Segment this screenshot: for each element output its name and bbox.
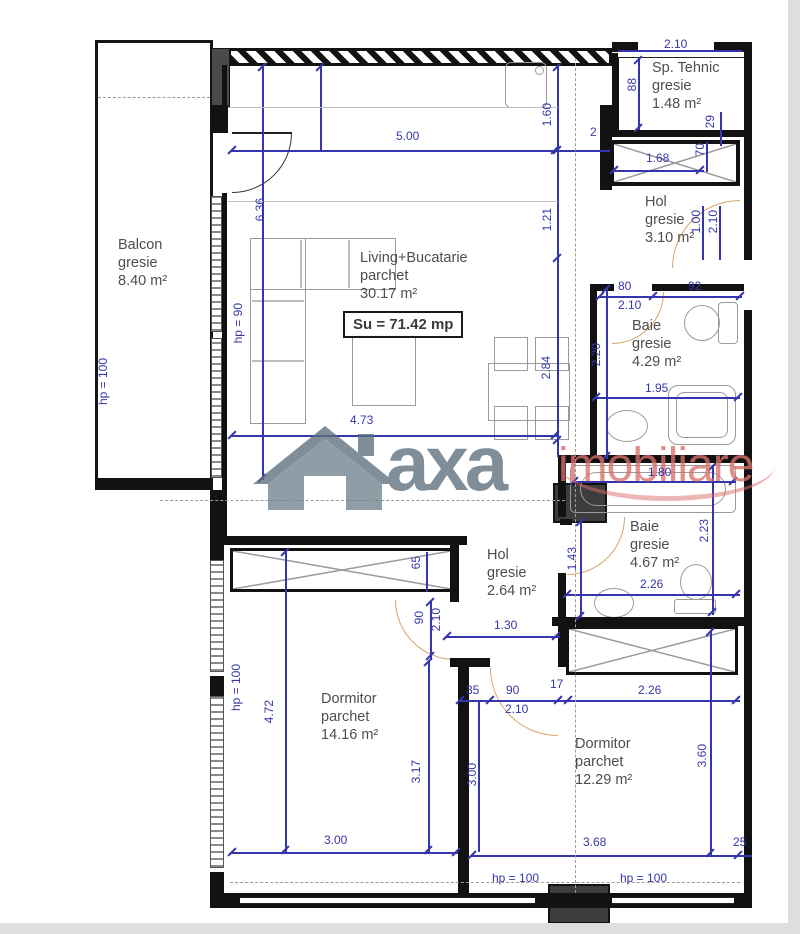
wall-segment (211, 105, 228, 133)
dashed-line (98, 97, 210, 98)
dimension-line (606, 287, 608, 459)
dimension-label: 2.84 (540, 356, 552, 379)
sofa-seam (300, 240, 302, 288)
dimension-line (565, 594, 740, 596)
dimension-line (612, 170, 704, 172)
house-icon (250, 424, 400, 510)
dining-chair (494, 337, 528, 371)
wall-segment (744, 310, 752, 908)
dimension-label: 2.26 (640, 578, 663, 590)
dimension-label: 2.10 (618, 299, 641, 311)
dimension-line (285, 550, 287, 852)
wall-segment (450, 658, 490, 667)
window-double-line (612, 897, 734, 904)
wall-segment (558, 455, 752, 463)
dimension-label: 2.23 (698, 519, 710, 542)
wall-segment (558, 573, 566, 623)
wall-segment (222, 536, 467, 545)
dimension-label: hp = 100 (620, 872, 667, 884)
dimension-label: 90 (413, 611, 425, 624)
hatched-top-wall (228, 48, 612, 66)
room-label-sp-tehnic: Sp. Tehnic gresie 1.48 m² (652, 60, 719, 114)
dimension-label: hp = 90 (232, 303, 244, 343)
guide-line (228, 107, 558, 108)
dimension-line (470, 855, 752, 857)
room-label-living: Living+Bucatarie parchet 30.17 m² (360, 250, 468, 304)
dimension-label: 3.00 (466, 763, 478, 786)
bedroom1-door-arc (395, 600, 455, 660)
window-glazing (211, 338, 222, 478)
dimension-label: 70 (694, 143, 706, 156)
usable-area-box: Su = 71.42 mp (343, 311, 463, 338)
dimension-line (638, 58, 640, 130)
wall-segment (210, 676, 224, 696)
wall-segment (450, 536, 459, 602)
wall-segment (612, 53, 619, 135)
dimension-label: 2.26 (638, 684, 661, 696)
dimension-label: 2.10 (505, 703, 528, 715)
sofa-seam (348, 240, 350, 288)
dimension-label: 1.68 (646, 152, 669, 164)
dimension-label: 1.21 (541, 208, 553, 231)
room-label-balcon: Balcon gresie 8.40 m² (118, 237, 167, 291)
wall-segment (558, 623, 568, 667)
floor-plan: Su = 71.42 mp axa imobiliare Balcon gres… (0, 0, 800, 934)
washbasin-icon (606, 410, 648, 442)
dimension-line (557, 65, 559, 457)
dimension-line (428, 660, 430, 852)
dimension-label: 1.80 (648, 466, 671, 478)
dimension-label: 3.68 (583, 836, 606, 848)
closet-crossed-box (610, 140, 740, 186)
dimension-label: 1.43 (566, 547, 578, 570)
dimension-label: 88 (626, 78, 638, 91)
wardrobe-crossed-box (230, 548, 454, 592)
dimension-label: 1.30 (494, 619, 517, 631)
sofa-seam (252, 300, 304, 302)
guide-line (228, 201, 558, 202)
wall-segment (600, 105, 612, 190)
coffee-table (352, 335, 416, 406)
window-glazing (210, 560, 224, 672)
dimension-line (720, 112, 722, 146)
dimension-line (426, 552, 428, 592)
dimension-line (445, 636, 560, 638)
kitchen-tap-icon (535, 66, 544, 75)
dimension-label: 2.10 (430, 608, 442, 631)
sofa-seam (252, 360, 304, 362)
wall-segment (552, 617, 752, 626)
dimension-label: 1.95 (645, 382, 668, 394)
page-edge-right (788, 0, 800, 934)
dimension-label: 80 (618, 280, 631, 292)
dimension-line (460, 700, 740, 702)
wall-segment (558, 455, 566, 517)
sofa-left-arm (250, 238, 306, 424)
wall-segment (744, 48, 752, 260)
dimension-label: 4.73 (350, 414, 373, 426)
dimension-label: 4.72 (263, 700, 275, 723)
dashed-line (160, 500, 565, 501)
dimension-label: 2.10 (707, 210, 719, 233)
dimension-line (230, 435, 558, 437)
dimension-label: hp = 100 (492, 872, 539, 884)
dimension-label: 17 (550, 678, 563, 690)
window-glazing (210, 696, 224, 868)
dimension-line (710, 630, 712, 855)
room-label-hol-1: Hol gresie 3.10 m² (645, 194, 694, 248)
dimension-label: hp = 100 (97, 358, 109, 405)
dimension-label: 1.60 (541, 103, 553, 126)
wall-segment (222, 193, 227, 536)
dimension-label: 5.00 (396, 130, 419, 142)
dimension-label: 3.00 (324, 834, 347, 846)
dimension-label: 29 (704, 115, 716, 128)
room-label-baie-2: Baie gresie 4.67 m² (630, 519, 679, 573)
toilet-tank-icon (718, 302, 738, 344)
wall-block-dark (211, 48, 230, 107)
shower-tray-inner (676, 392, 728, 438)
room-label-dormitor-2: Dormitor parchet 12.29 m² (575, 736, 632, 790)
dimension-label: 3.17 (410, 760, 422, 783)
dimension-label: 65 (410, 556, 422, 569)
dimension-label: 92 (688, 280, 701, 292)
dimension-label: 6.36 (254, 198, 266, 221)
wardrobe-crossed-box (566, 626, 738, 675)
dimension-line (580, 520, 582, 618)
room-label-dormitor-1: Dormitor parchet 14.16 m² (321, 691, 378, 745)
washbasin-icon (594, 588, 634, 618)
room-label-baie-1: Baie gresie 4.29 m² (632, 318, 681, 372)
dimension-label: 2.10 (664, 38, 687, 50)
dim-tick (257, 473, 266, 482)
dimension-label: 90 (506, 684, 519, 696)
dimension-label: 35 (466, 684, 479, 696)
room-label-hol-2: Hol gresie 2.64 m² (487, 547, 536, 601)
dimension-label: 2 (590, 126, 597, 138)
page-edge-bottom (0, 923, 800, 934)
window-double-line (240, 897, 535, 904)
wall-segment (95, 478, 213, 490)
dim-tick (735, 291, 744, 300)
dimension-line (712, 465, 714, 615)
window-glazing (211, 196, 222, 332)
wall-segment (590, 284, 597, 462)
dimension-label: hp = 100 (230, 664, 242, 711)
dimension-label: 1.00 (690, 210, 702, 233)
window-double-line (618, 51, 744, 58)
dimension-line (262, 65, 264, 480)
toilet-bowl-icon (684, 305, 720, 341)
dimension-line (594, 397, 740, 399)
dimension-label: 25 (733, 836, 746, 848)
dimension-label: 2.20 (590, 343, 602, 366)
dimension-label: 3.60 (696, 744, 708, 767)
